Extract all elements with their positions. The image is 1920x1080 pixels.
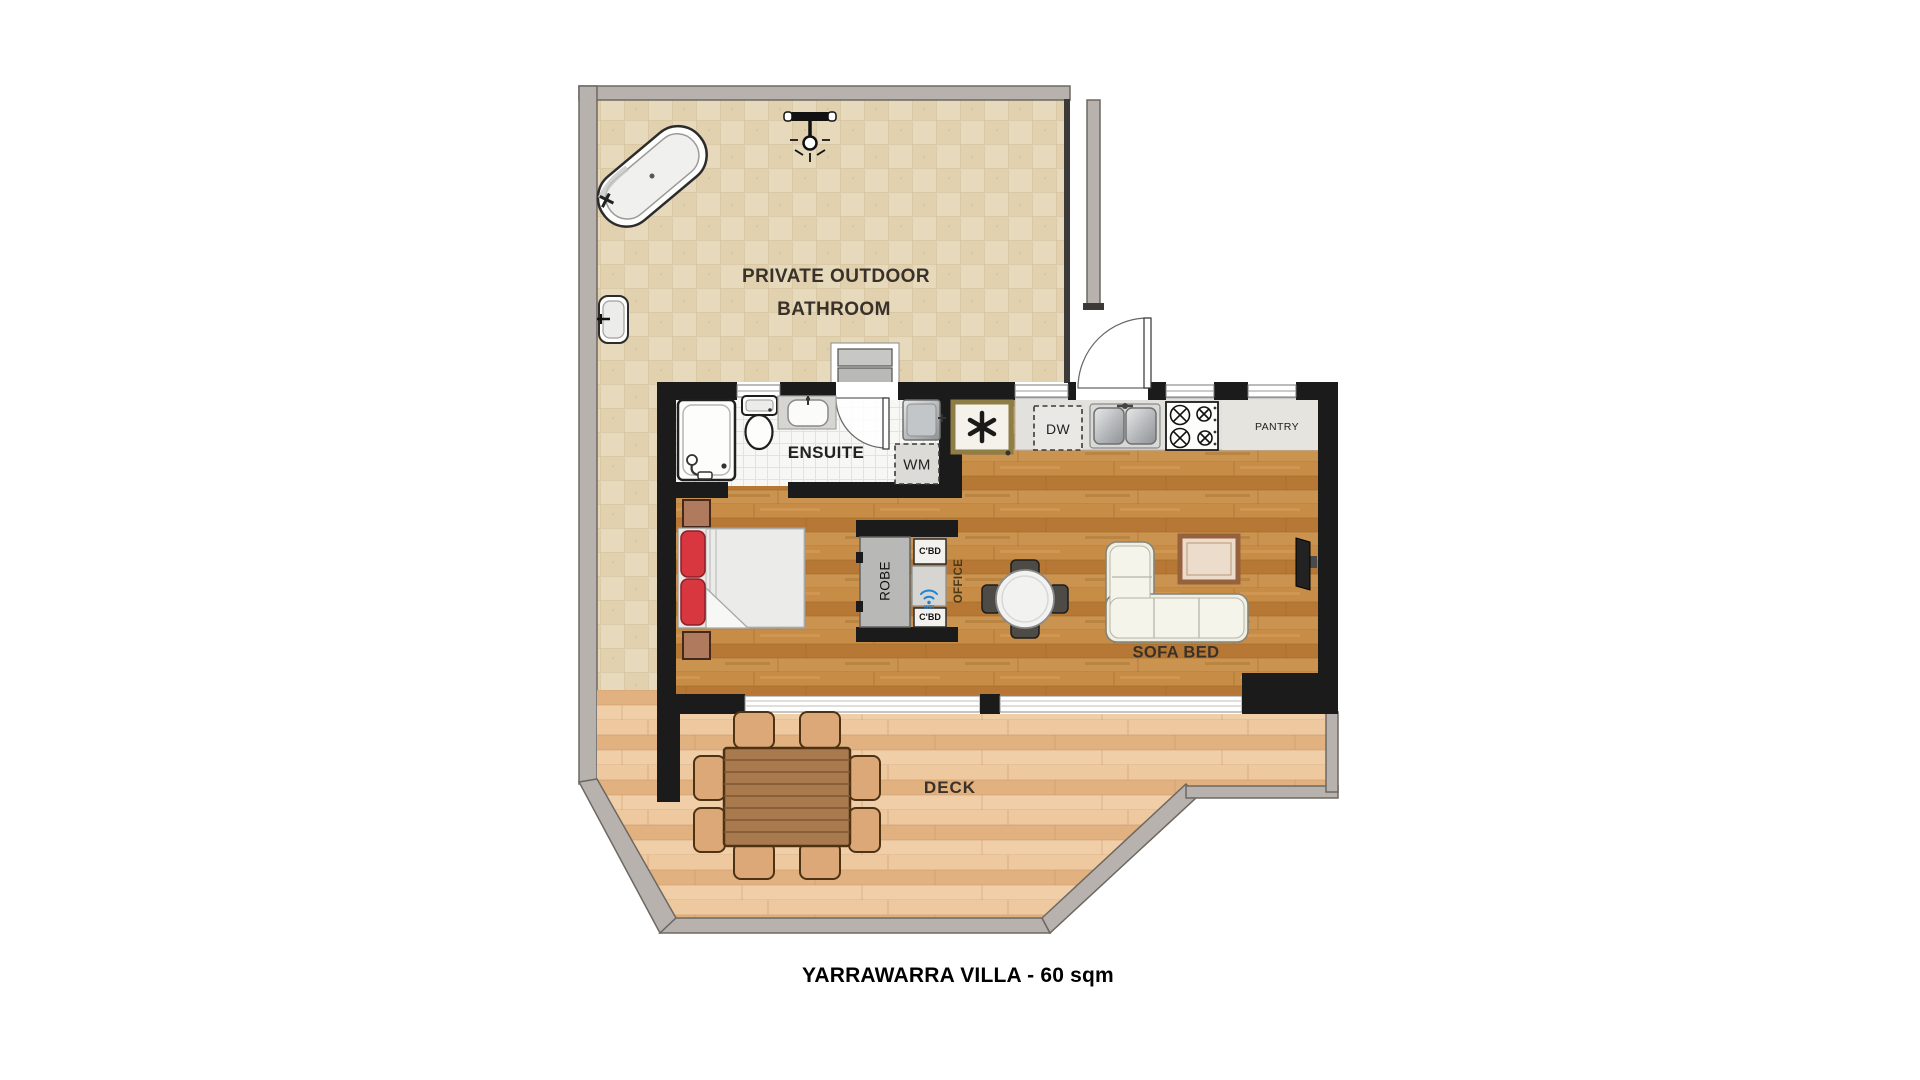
deck-chair (734, 712, 774, 748)
office-label: OFFICE (953, 559, 965, 604)
floor-plan-drawing (0, 0, 1920, 1080)
east-wall (1318, 382, 1338, 714)
south-wall-corner (1242, 673, 1338, 714)
south-window-right (1000, 696, 1242, 712)
ensuite-label: ENSUITE (788, 443, 864, 463)
deck-chair (694, 808, 725, 852)
deck-chair (694, 756, 725, 800)
ensuite-door-leaf (883, 398, 889, 449)
ensuite-door-opening (836, 382, 898, 400)
plan-title: YARRAWARRA VILLA - 60 sqm (802, 964, 1114, 988)
dining-table (996, 570, 1054, 628)
privacy-wall-right (1087, 100, 1100, 306)
pillow-icon (681, 531, 705, 577)
outdoor-basin-icon (597, 296, 628, 343)
fence-top (579, 86, 1070, 100)
entry-door-swing (1078, 318, 1148, 388)
bedside-table-bottom (683, 632, 710, 659)
vanity-sink-icon (778, 396, 836, 429)
south-window-left (745, 696, 980, 712)
west-wall (657, 382, 676, 714)
deck-chair (800, 712, 840, 748)
outdoor-bathroom-label-line2: BATHROOM (777, 299, 891, 321)
coffee-table-icon (1180, 536, 1238, 582)
office-desk (912, 566, 946, 606)
kitchen-sink-icon (1090, 403, 1160, 448)
deck-label: DECK (924, 778, 976, 798)
bathroom-right-wall (1064, 99, 1070, 383)
cupboard-top-label: C'BD (919, 546, 941, 556)
pillow-icon (681, 579, 705, 625)
entry-steps-icon (831, 343, 899, 387)
deck-floor (597, 690, 1326, 920)
washing-machine-label: WM (903, 457, 930, 474)
robe-office-unit (856, 520, 958, 642)
ensuite-south-wall-left (657, 482, 728, 498)
privacy-wall-cap (1083, 303, 1104, 310)
deck-chair (800, 843, 840, 879)
cupboard-bottom-label: C'BD (919, 612, 941, 622)
laundry-sink-icon (903, 400, 946, 440)
sofa-bed-label: SOFA BED (1133, 644, 1220, 663)
fence-left (579, 86, 597, 784)
wifi-label: WIFI (924, 605, 935, 611)
south-wall-left (657, 694, 745, 714)
outdoor-bathroom-label-line1: PRIVATE OUTDOOR (742, 266, 930, 288)
deck-privacy-wall (657, 714, 680, 802)
fence-deck-bottom (660, 918, 1050, 933)
floor-plan-page: PRIVATE OUTDOOR BATHROOM ENSUITE WM DW P… (0, 0, 1920, 1080)
fence-deck-right-vertical (1326, 712, 1338, 792)
dishwasher-label: DW (1046, 421, 1070, 437)
bedside-table-top (683, 500, 710, 527)
stove-icon (1166, 402, 1218, 450)
entry-door-leaf (1144, 318, 1151, 388)
shower-icon (678, 400, 735, 480)
deck-chair (849, 756, 880, 800)
south-wall-mullion (980, 694, 1000, 714)
fence-deck-right (1186, 786, 1338, 798)
robe-label: ROBE (878, 561, 893, 601)
deck-chair (734, 843, 774, 879)
heater-icon (953, 402, 1011, 456)
bed-icon (678, 528, 805, 628)
deck-chair (849, 808, 880, 852)
pantry-label: PANTRY (1255, 421, 1299, 433)
